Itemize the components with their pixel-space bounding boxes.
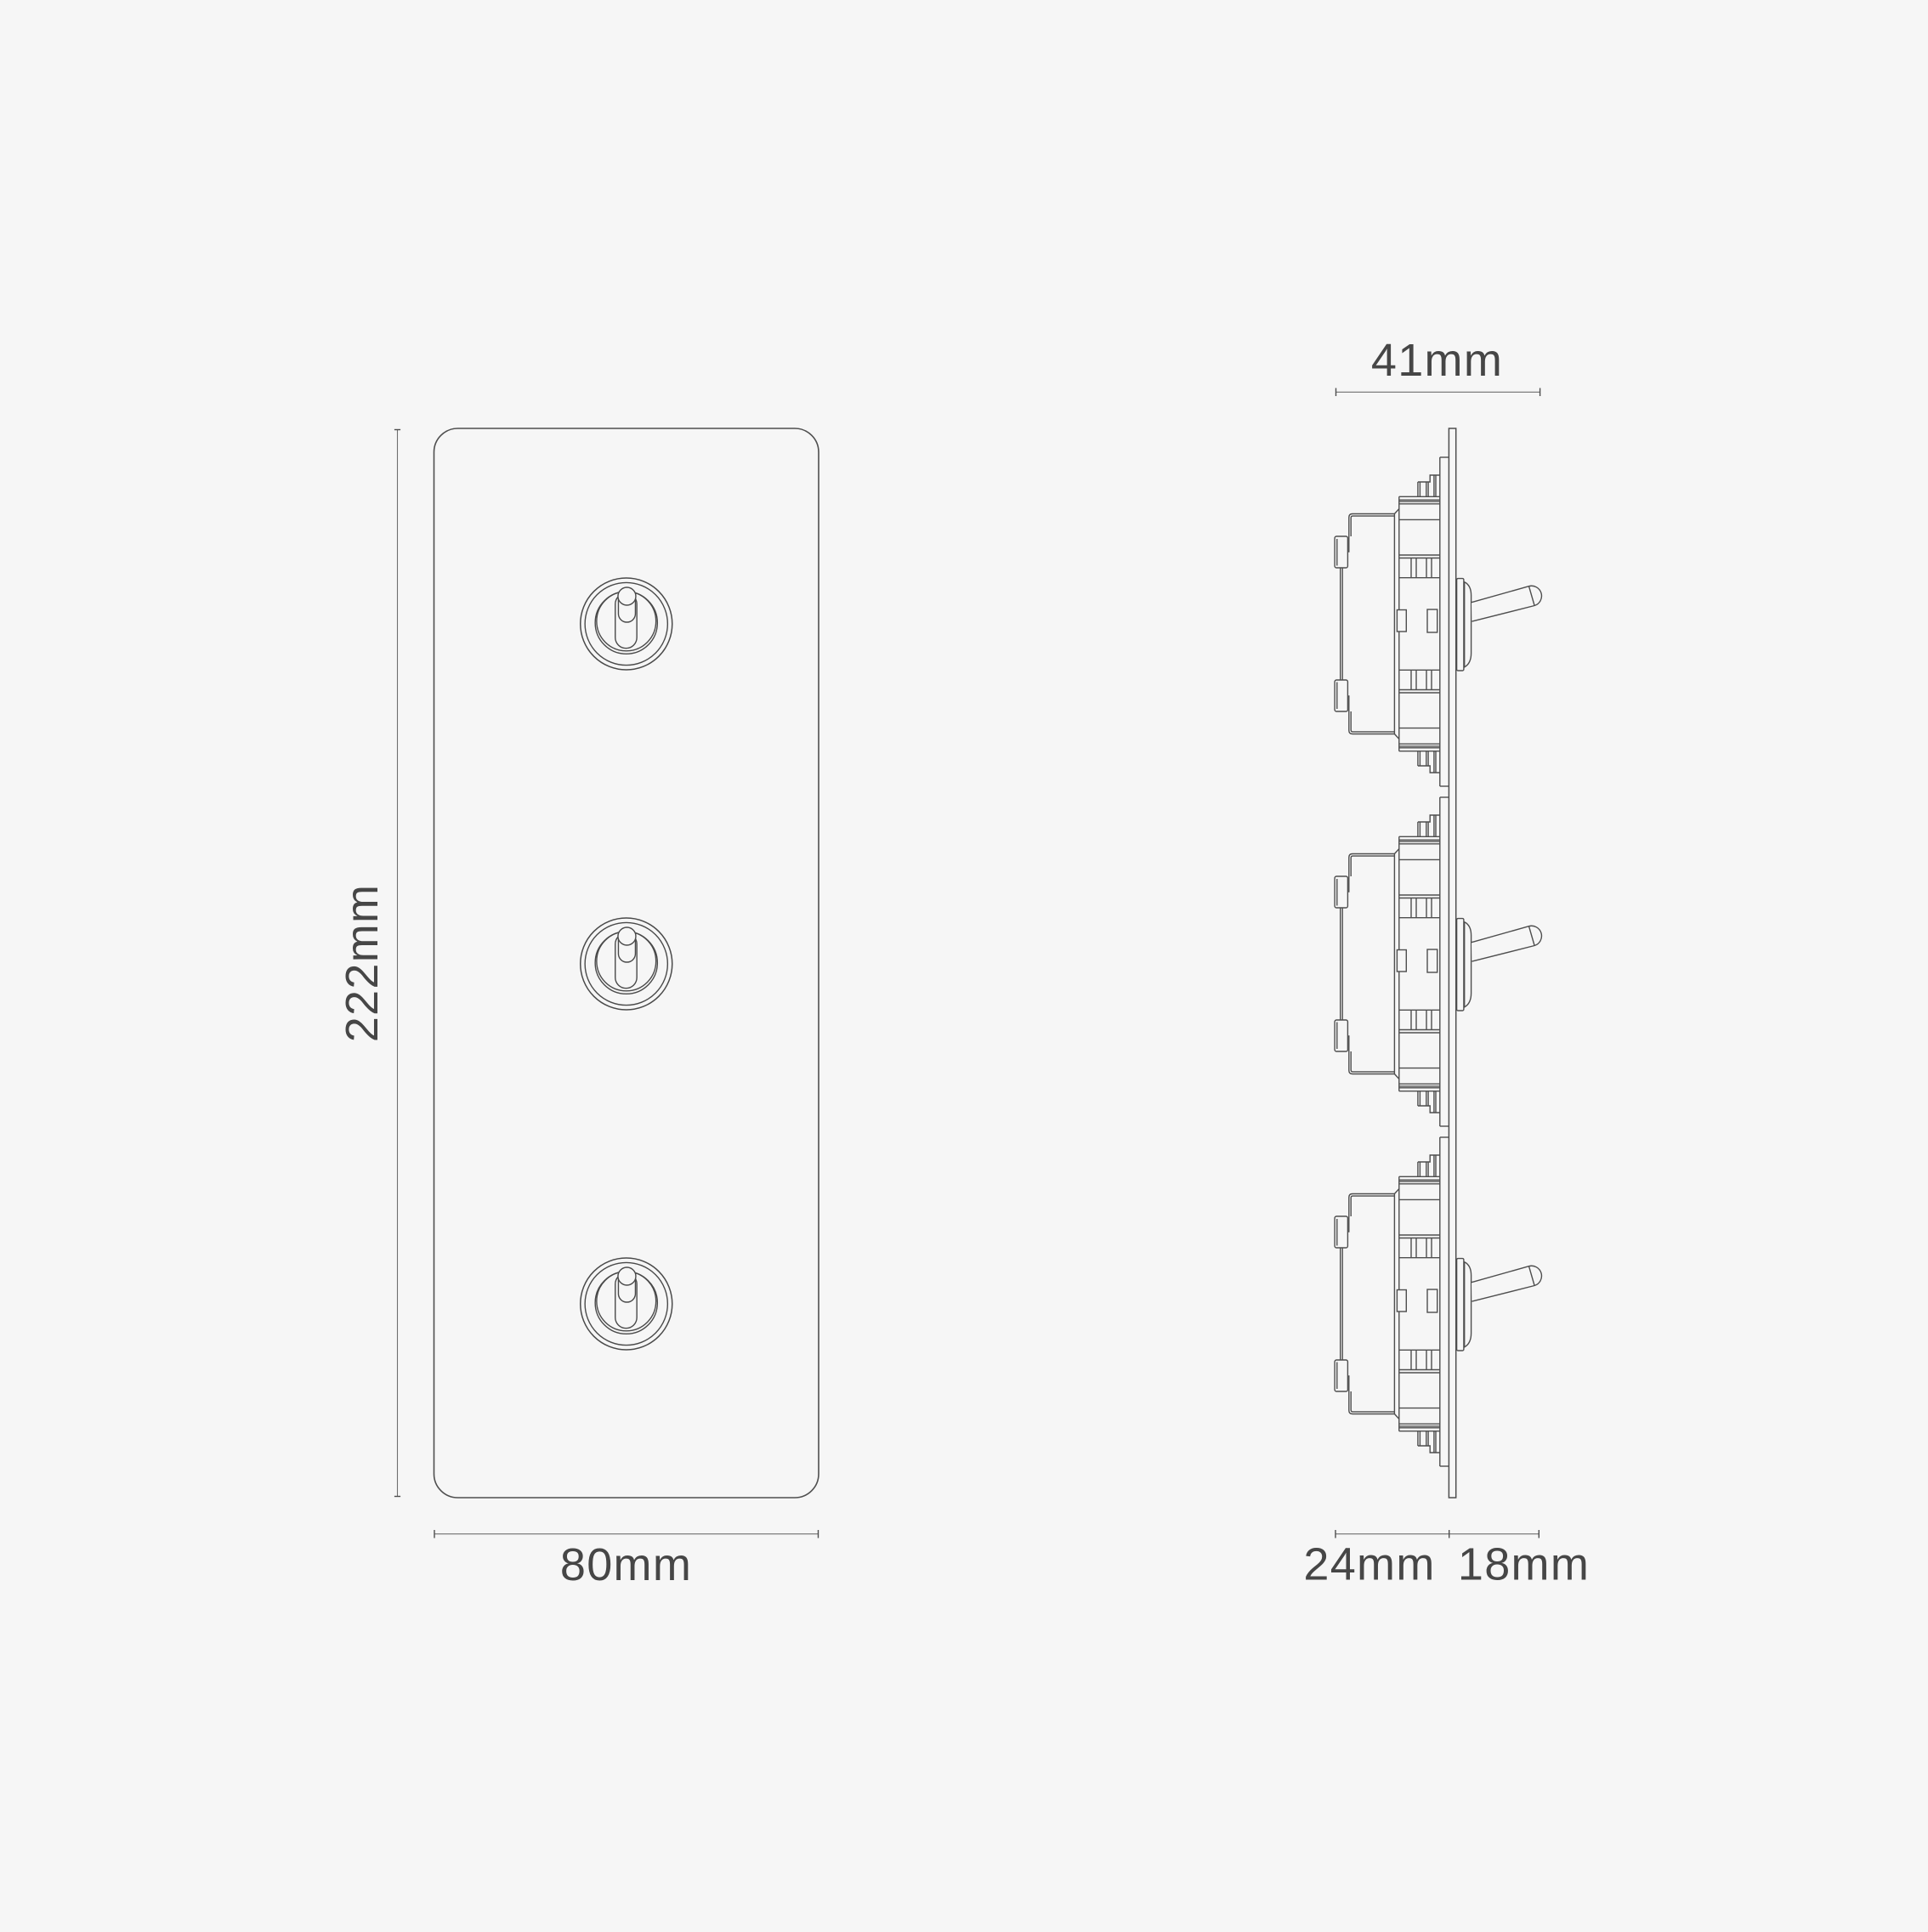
svg-text:24mm: 24mm <box>1303 1539 1435 1590</box>
svg-text:18mm: 18mm <box>1458 1539 1590 1590</box>
svg-text:41mm: 41mm <box>1371 335 1503 386</box>
svg-text:222mm: 222mm <box>337 884 388 1043</box>
svg-text:80mm: 80mm <box>560 1539 692 1590</box>
